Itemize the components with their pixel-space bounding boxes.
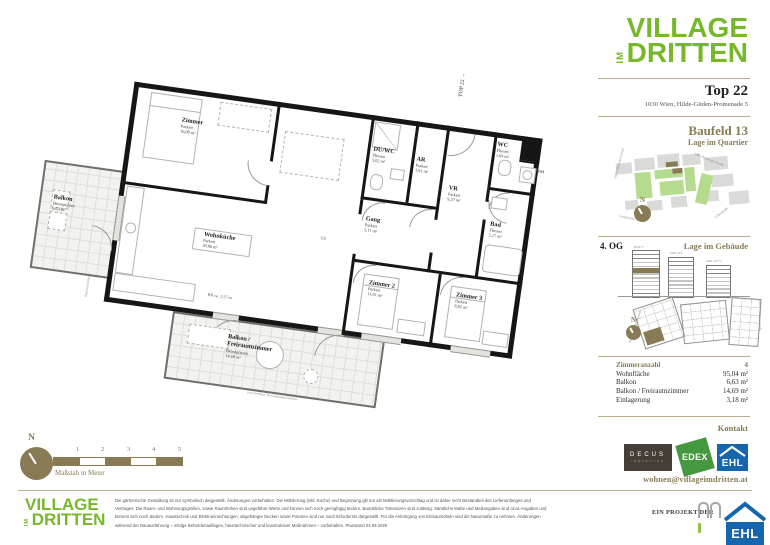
floor-plan: Zimmer Parkett 16,08 m² Wohnküche Parket… <box>53 76 550 437</box>
scale-segment <box>105 458 131 465</box>
detail-row: Balkon 6,63 m² <box>616 378 748 387</box>
detail-value: 4 <box>745 361 749 370</box>
building-label: HGP 5 <box>634 245 643 249</box>
compass-needle <box>629 327 634 333</box>
elevation-highlight-floor <box>633 268 659 273</box>
compass-needle <box>28 452 37 464</box>
map-park <box>659 180 684 196</box>
brand-word-im: IM <box>25 518 31 526</box>
are-green-bar <box>698 523 701 533</box>
room-area: 1,69 m² <box>495 153 509 160</box>
divider <box>598 236 750 237</box>
ehl-logo-large: EHL <box>722 500 768 545</box>
building-label: OPS 121+2 <box>706 259 722 263</box>
mini-plan-unit-highlight <box>643 327 664 346</box>
are-arch-shape <box>698 502 709 518</box>
plan-sheet: Zimmer Parkett 16,08 m² Wohnküche Parket… <box>0 0 770 545</box>
wall-int <box>487 132 498 187</box>
room-height-note: RH ca. 2,57 m <box>207 292 232 300</box>
scale-tick: 5 <box>178 446 181 453</box>
mini-plan-1 <box>633 297 686 350</box>
shaft <box>519 136 542 163</box>
scale-segment <box>54 458 80 465</box>
furniture-toilet <box>497 159 512 177</box>
door-arc-entry <box>447 131 475 159</box>
room-area: 5,17 m² <box>488 233 502 240</box>
are-arch-shape <box>710 502 721 518</box>
furniture-dining-table <box>279 131 344 181</box>
street-label: Otto-Preminger-Straße <box>758 300 762 331</box>
mini-plan-3 <box>728 297 761 347</box>
quartier-map: Adolf-Blamauer-Gasse Otto-Preminger-Stra… <box>612 148 752 230</box>
scale-label: Maßstab in Meter <box>55 469 105 477</box>
elevation-building-3 <box>706 265 731 298</box>
room-area: 1,91 m² <box>415 168 429 175</box>
detail-label: Zimmeranzahl <box>616 361 660 370</box>
north-label: N <box>631 316 636 324</box>
detail-row: Wohnfläche 95,04 m² <box>616 370 748 379</box>
edex-logo-text: EDEX <box>682 452 708 462</box>
scale-segment <box>131 458 157 465</box>
scale-tick: 3 <box>127 446 130 453</box>
room-label-wc: WC Fliesen 1,69 m² <box>495 141 511 160</box>
scale-segment <box>80 458 106 465</box>
brand-row2: IM DRITTEN <box>25 513 105 528</box>
absturzsicherung-note: Absturzsicherung <box>84 273 91 297</box>
map-park <box>684 167 696 192</box>
brand-logo: VILLAGE IM DRITTEN <box>618 16 748 65</box>
divider <box>598 416 750 417</box>
ehl-roof-icon <box>722 500 768 522</box>
detail-row: Zimmeranzahl 4 <box>616 361 748 370</box>
elevation-building-2 <box>668 257 694 298</box>
unit-details-table: Zimmeranzahl 4 Wohnfläche 95,04 m² Balko… <box>616 361 748 405</box>
room-label-ar: AR Parkett 1,91 m² <box>415 156 431 175</box>
brand-row2: IM DRITTEN <box>616 41 748 66</box>
furniture-toilet <box>369 173 384 191</box>
detail-value: 95,04 m² <box>723 370 748 379</box>
scale-tick: 2 <box>101 446 104 453</box>
map-park <box>634 172 652 199</box>
contact-email[interactable]: wohnen@villageimdritten.at <box>598 475 748 484</box>
baufeld-title: Baufeld 13 <box>598 123 748 139</box>
building-label: OPS 123 <box>670 251 682 255</box>
unit-title: Top 22 <box>598 83 748 100</box>
brand-word-im: IM <box>616 51 626 64</box>
detail-value: 3,18 m² <box>726 396 748 405</box>
wall-int <box>434 126 450 220</box>
divider <box>18 490 752 491</box>
room-label-zimmer2: Zimmer 2 Parkett 11,01 m² <box>367 279 395 300</box>
edex-logo: EDEX <box>675 437 715 477</box>
furniture-desk <box>396 319 426 337</box>
furniture-wardrobe <box>217 102 272 133</box>
map-block <box>728 190 749 205</box>
detail-label: Wohnfläche <box>616 370 650 379</box>
wall-int <box>358 199 363 214</box>
furniture-chair <box>47 211 67 231</box>
brand-word-dritten: DRITTEN <box>32 513 106 528</box>
furniture-bathtub <box>482 244 524 277</box>
detail-value: 6,63 m² <box>726 378 748 387</box>
elevation-baseline <box>618 296 750 297</box>
room-label-zimmer: Zimmer Parkett 16,08 m² <box>180 117 204 137</box>
are-logo <box>698 502 722 522</box>
decus-logo: DECUS IMMOBILIEN <box>624 444 672 471</box>
map-block <box>711 174 734 188</box>
ehl-logo-text: EHL <box>726 522 764 545</box>
scale-tick: 4 <box>152 446 155 453</box>
compass-icon <box>20 447 53 480</box>
ehl-logo: EHL <box>717 444 748 471</box>
scale-bar <box>53 457 183 466</box>
room-area: 5,11 m² <box>364 227 379 234</box>
wall-int <box>341 254 355 336</box>
map-highlight-building <box>672 168 682 174</box>
room-label-duwc: DU/WC Fliesen 5,02 m² <box>372 146 396 166</box>
compass-icon <box>634 205 651 222</box>
unit-address: 1030 Wien, Hilde-Güden-Promenade 5 <box>598 101 748 108</box>
map-block <box>671 196 688 208</box>
map-highlight-building <box>666 161 678 167</box>
brand-word-dritten: DRITTEN <box>627 41 748 66</box>
detail-label: Balkon / Freiraumzimmer <box>616 387 689 396</box>
furniture-desk <box>481 331 509 348</box>
unit-entry-label: TOP 22 → <box>458 72 467 97</box>
furniture-kitchen-counter <box>112 273 196 302</box>
furniture-washbasin <box>390 168 405 181</box>
gebaeude-title: Lage im Gebäude <box>598 241 748 251</box>
scale-tick: 1 <box>76 446 79 453</box>
decus-logo-subtext: IMMOBILIEN <box>631 460 664 463</box>
mini-plan-2 <box>680 300 730 345</box>
unit-entry-text: TOP 22 <box>458 79 466 97</box>
compass-needle <box>638 207 643 214</box>
gs-label: GS <box>320 235 326 241</box>
wall-int <box>487 187 535 197</box>
kontakt-title: Kontakt <box>598 423 748 433</box>
window-zimmer3 <box>450 345 491 357</box>
north-label: N <box>640 196 645 204</box>
furniture-washbasin <box>490 196 508 210</box>
detail-label: Balkon <box>616 378 636 387</box>
room-label-zimmer3: Zimmer 3 Parkett 8,82 m² <box>454 291 482 312</box>
wall-int <box>429 274 442 348</box>
decus-logo-text: DECUS <box>630 452 666 458</box>
scale-segment <box>156 458 182 465</box>
elevation-building-1 <box>632 250 660 298</box>
footer-brand-logo: VILLAGE IM DRITTEN <box>25 498 95 528</box>
disclaimer-text: Die gärtnerische Gestaltung ist nur symb… <box>115 497 547 531</box>
detail-label: Einlagerung <box>616 396 650 405</box>
ehl-roof-icon <box>717 445 748 457</box>
north-label: N <box>28 433 35 443</box>
detail-row: Balkon / Freiraumzimmer 14,69 m² <box>616 387 748 396</box>
room-label-vr: VR Parkett 9,37 m² <box>447 184 463 203</box>
room-label-bad: Bad Fliesen 5,17 m² <box>488 220 504 239</box>
room-label-gang: Gang Parkett 5,11 m² <box>364 215 381 234</box>
compass-icon <box>626 325 641 340</box>
divider <box>598 116 750 117</box>
divider <box>598 356 750 357</box>
detail-value: 14,69 m² <box>723 387 748 396</box>
map-block <box>634 157 655 171</box>
door-arc <box>245 160 271 186</box>
ehl-logo-text: EHL <box>717 458 748 469</box>
room-area: 9,37 m² <box>447 197 461 204</box>
wm-label: WM <box>536 168 545 174</box>
divider <box>598 78 750 79</box>
arrow-up-icon: → <box>460 72 467 78</box>
quartier-map-blocks <box>609 142 756 236</box>
detail-row: Einlagerung 3,18 m² <box>616 396 748 405</box>
door-arc <box>409 206 433 230</box>
